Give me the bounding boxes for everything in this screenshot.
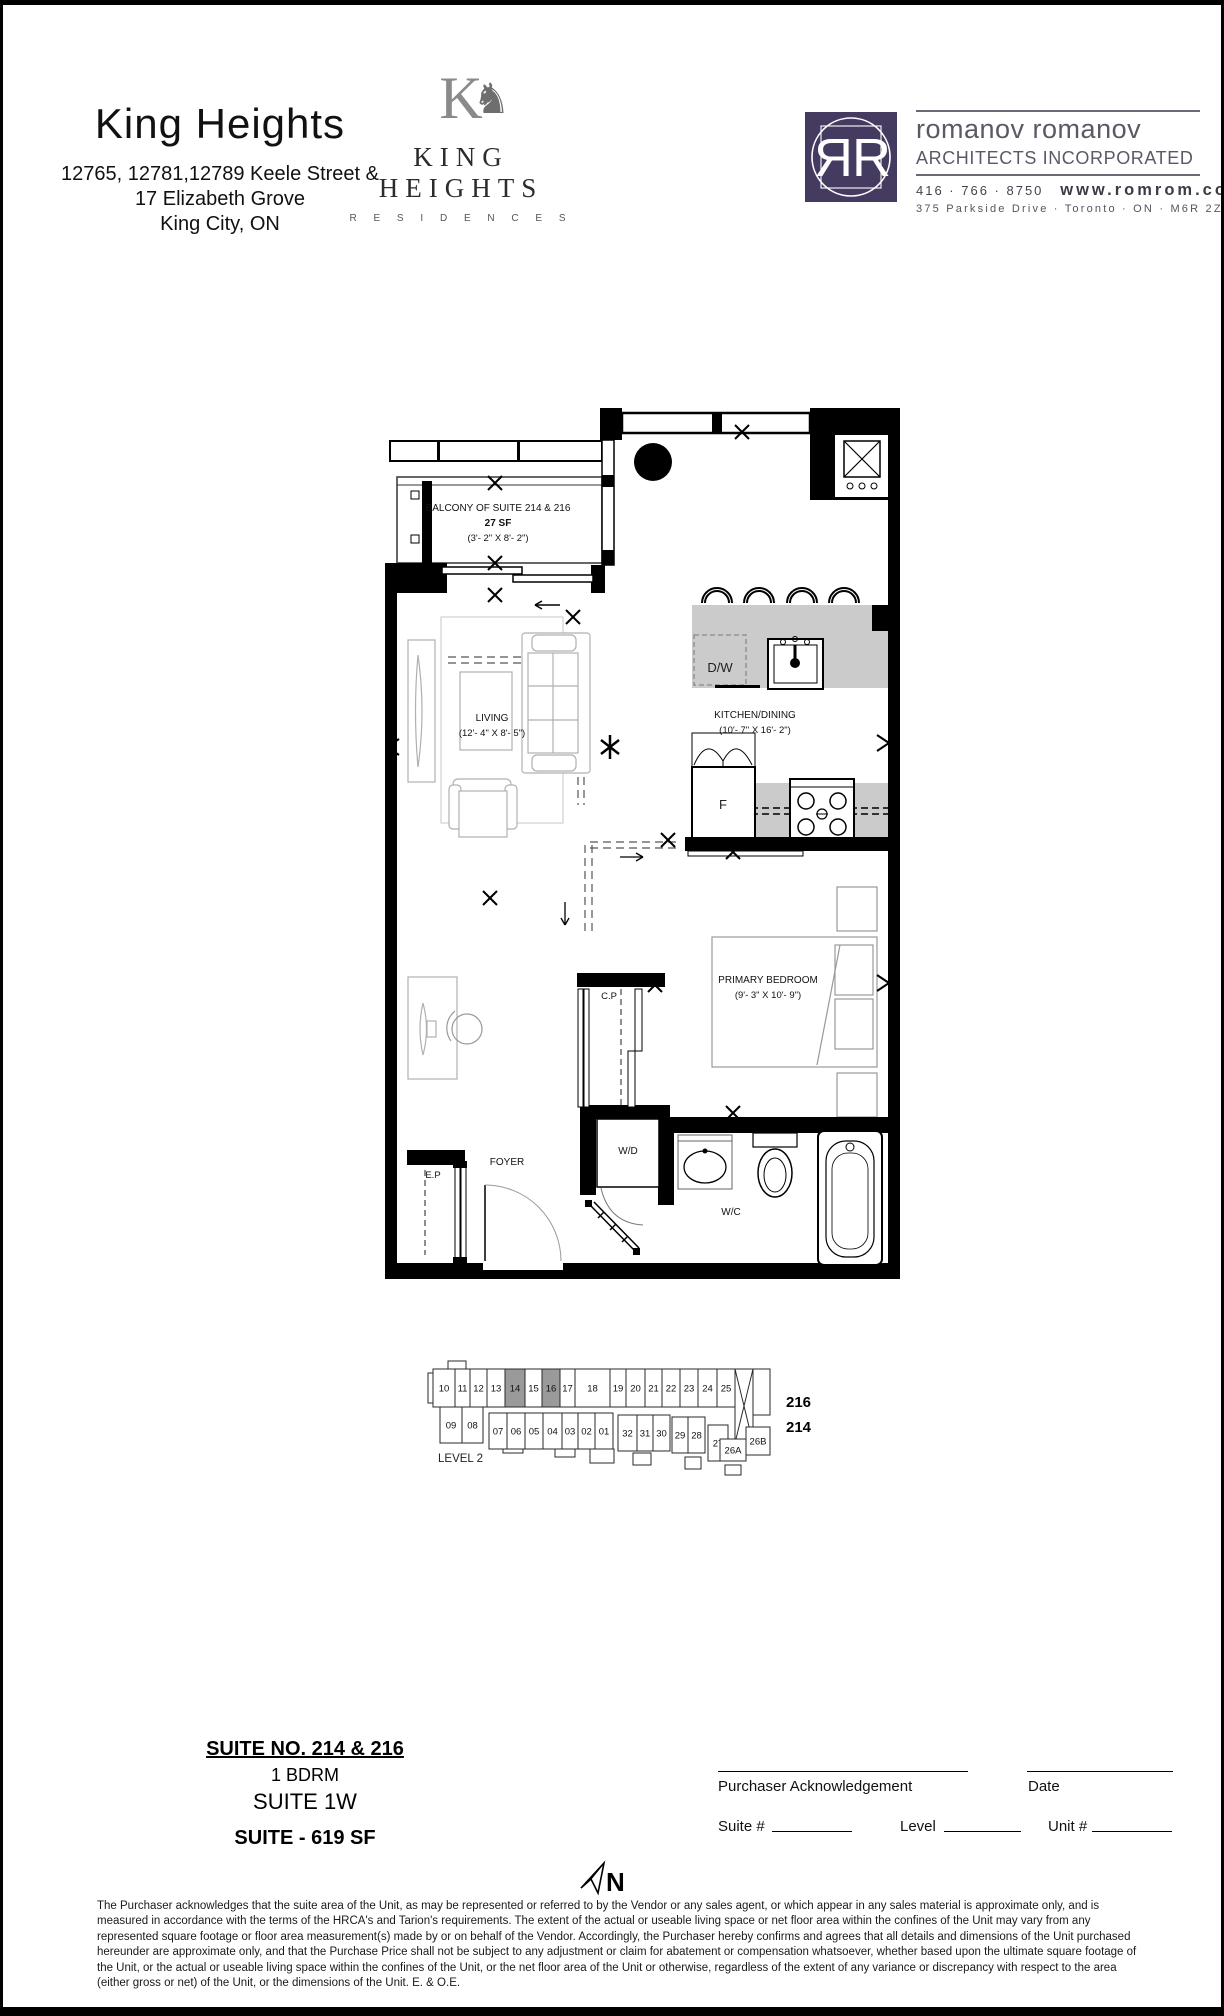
svg-text:26A: 26A xyxy=(725,1446,743,1457)
svg-text:26B: 26B xyxy=(750,1437,767,1448)
brand-monogram: K♞ xyxy=(330,58,592,138)
architect-website: www.romrom.com xyxy=(1060,181,1224,199)
electrical-panel-label: E.P xyxy=(425,1170,440,1181)
closet-label: C.P xyxy=(601,991,617,1002)
nightstand xyxy=(837,887,877,931)
svg-text:17: 17 xyxy=(562,1384,573,1395)
bedroom-label: PRIMARY BEDROOM (9'- 3" X 10'- 9") xyxy=(718,973,818,1003)
svg-text:20: 20 xyxy=(630,1384,641,1395)
callout-unit-214: 214 xyxy=(786,1419,811,1436)
unit-field-line xyxy=(1092,1831,1172,1832)
svg-text:15: 15 xyxy=(528,1384,539,1395)
stove-icon xyxy=(790,779,854,841)
suite-number: SUITE NO. 214 & 216 xyxy=(206,1738,404,1761)
suite-field-line xyxy=(772,1831,852,1832)
bar-stools xyxy=(702,588,859,603)
architect-contact-row: 416 · 766 · 8750 www.romrom.com xyxy=(916,181,1200,200)
svg-text:30: 30 xyxy=(656,1429,667,1440)
date-label: Date xyxy=(1028,1778,1060,1795)
entry-door xyxy=(485,1185,561,1261)
svg-text:24: 24 xyxy=(702,1384,713,1395)
level-field-line xyxy=(944,1831,1021,1832)
suite-name: SUITE 1W xyxy=(253,1789,357,1815)
balcony-area: 27 SF xyxy=(426,516,571,531)
architect-firm-subtitle: ARCHITECTS INCORPORATED xyxy=(916,146,1200,170)
angled-door xyxy=(590,1202,639,1251)
purchaser-acknowledgement-label: Purchaser Acknowledgement xyxy=(718,1778,912,1795)
keyplan-level-label: LEVEL 2 xyxy=(438,1453,483,1465)
brand-name: KING HEIGHTS xyxy=(330,142,592,204)
svg-text:06: 06 xyxy=(511,1427,522,1438)
asterisk-mark xyxy=(601,735,619,759)
svg-text:32: 32 xyxy=(622,1429,633,1440)
living-furniture xyxy=(408,617,590,1079)
svg-text:11: 11 xyxy=(458,1384,468,1395)
nightstand xyxy=(837,1073,877,1117)
balcony-dims: (3'- 2" X 8'- 2") xyxy=(426,531,571,546)
svg-text:23: 23 xyxy=(684,1384,695,1395)
desk-and-chair xyxy=(408,977,482,1079)
balcony-door-arrow xyxy=(535,601,560,609)
svg-text:25: 25 xyxy=(721,1384,732,1395)
svg-text:13: 13 xyxy=(491,1384,502,1395)
bathtub-icon xyxy=(818,1131,882,1265)
bathroom xyxy=(674,1117,888,1265)
suite-type: 1 BDRM xyxy=(271,1765,339,1786)
floor-plan: BALCONY OF SUITE 214 & 216 27 SF (3'- 2"… xyxy=(385,405,900,1280)
keyplan-cells: 1011121314151617181920212223242509080706… xyxy=(433,1369,770,1461)
svg-text:03: 03 xyxy=(565,1427,576,1438)
kitchen-label: KITCHEN/DINING (10'- 7" X 16'- 2") xyxy=(714,708,796,738)
balcony-label: BALCONY OF SUITE 214 & 216 27 SF (3'- 2"… xyxy=(426,501,571,546)
svg-text:21: 21 xyxy=(648,1384,659,1395)
laundry-wd xyxy=(580,1117,674,1255)
toilet-icon xyxy=(753,1133,797,1197)
architect-logo-icon: R R xyxy=(805,112,897,202)
svg-text:01: 01 xyxy=(599,1427,610,1438)
callout-unit-216: 216 xyxy=(786,1394,811,1411)
column xyxy=(634,443,672,481)
washer-dryer-label: W/D xyxy=(618,1146,637,1157)
architect-block: romanov romanov ARCHITECTS INCORPORATED … xyxy=(916,110,1200,215)
fridge-label: F xyxy=(719,797,727,812)
svg-text:16: 16 xyxy=(546,1384,557,1395)
svg-text:04: 04 xyxy=(547,1427,558,1438)
kitchen-appliances xyxy=(685,733,900,856)
svg-text:14: 14 xyxy=(510,1384,521,1395)
foyer-label: FOYER xyxy=(490,1157,524,1168)
keyplan-svg: 1011121314151617181920212223242509080706… xyxy=(420,1333,840,1483)
purchaser-signature-line xyxy=(718,1771,968,1772)
living-label: LIVING (12'- 4" X 8'- 5") xyxy=(459,711,525,741)
keyplan: 1011121314151617181920212223242509080706… xyxy=(420,1333,840,1483)
water-closet-label: W/C xyxy=(721,1207,740,1218)
north-label: N xyxy=(606,1867,625,1897)
svg-text:18: 18 xyxy=(587,1384,598,1395)
svg-text:07: 07 xyxy=(493,1427,504,1438)
dishwasher-label: D/W xyxy=(707,660,732,675)
svg-text:08: 08 xyxy=(467,1421,478,1432)
svg-text:02: 02 xyxy=(581,1427,592,1438)
flow-arrows xyxy=(561,853,643,925)
floorplan-sheet: { "page": {"north_label": "N"}, "header"… xyxy=(0,0,1224,2016)
architect-address: 375 Parkside Drive · Toronto · ON · M6R … xyxy=(916,203,1200,215)
svg-text:22: 22 xyxy=(666,1384,677,1395)
sofa xyxy=(522,633,590,773)
horse-icon: ♞ xyxy=(473,60,511,140)
north-arrow-icon: N xyxy=(578,1860,630,1898)
architect-firm-name: romanov romanov xyxy=(916,112,1200,146)
brand-logo: K♞ KING HEIGHTS R E S I D E N C E S xyxy=(330,58,592,224)
svg-text:R: R xyxy=(814,128,853,188)
closet-ep xyxy=(407,1150,467,1264)
architect-phone: 416 · 766 · 8750 xyxy=(916,183,1043,198)
svg-text:R: R xyxy=(852,128,891,188)
svg-text:31: 31 xyxy=(640,1429,651,1440)
vanity-sink-icon xyxy=(678,1135,732,1189)
architect-rule-bottom xyxy=(916,174,1200,176)
svg-text:10: 10 xyxy=(439,1384,450,1395)
svg-text:05: 05 xyxy=(529,1427,540,1438)
unit-field-label: Unit # xyxy=(1048,1818,1087,1835)
level-field-label: Level xyxy=(900,1818,936,1835)
date-line xyxy=(1027,1771,1173,1772)
brand-subtitle: R E S I D E N C E S xyxy=(330,213,592,224)
disclaimer-text: The Purchaser acknowledges that the suit… xyxy=(97,1899,1137,1991)
balcony-title: BALCONY OF SUITE 214 & 216 xyxy=(426,501,571,516)
suite-area: SUITE - 619 SF xyxy=(234,1827,375,1850)
closet-cp xyxy=(577,973,670,1119)
svg-text:29: 29 xyxy=(675,1431,686,1442)
svg-text:12: 12 xyxy=(473,1384,484,1395)
svg-text:28: 28 xyxy=(691,1431,702,1442)
svg-text:19: 19 xyxy=(613,1384,624,1395)
suite-field-label: Suite # xyxy=(718,1818,765,1835)
armchair xyxy=(449,779,517,837)
svg-text:09: 09 xyxy=(446,1421,457,1432)
sink-icon xyxy=(768,637,823,690)
